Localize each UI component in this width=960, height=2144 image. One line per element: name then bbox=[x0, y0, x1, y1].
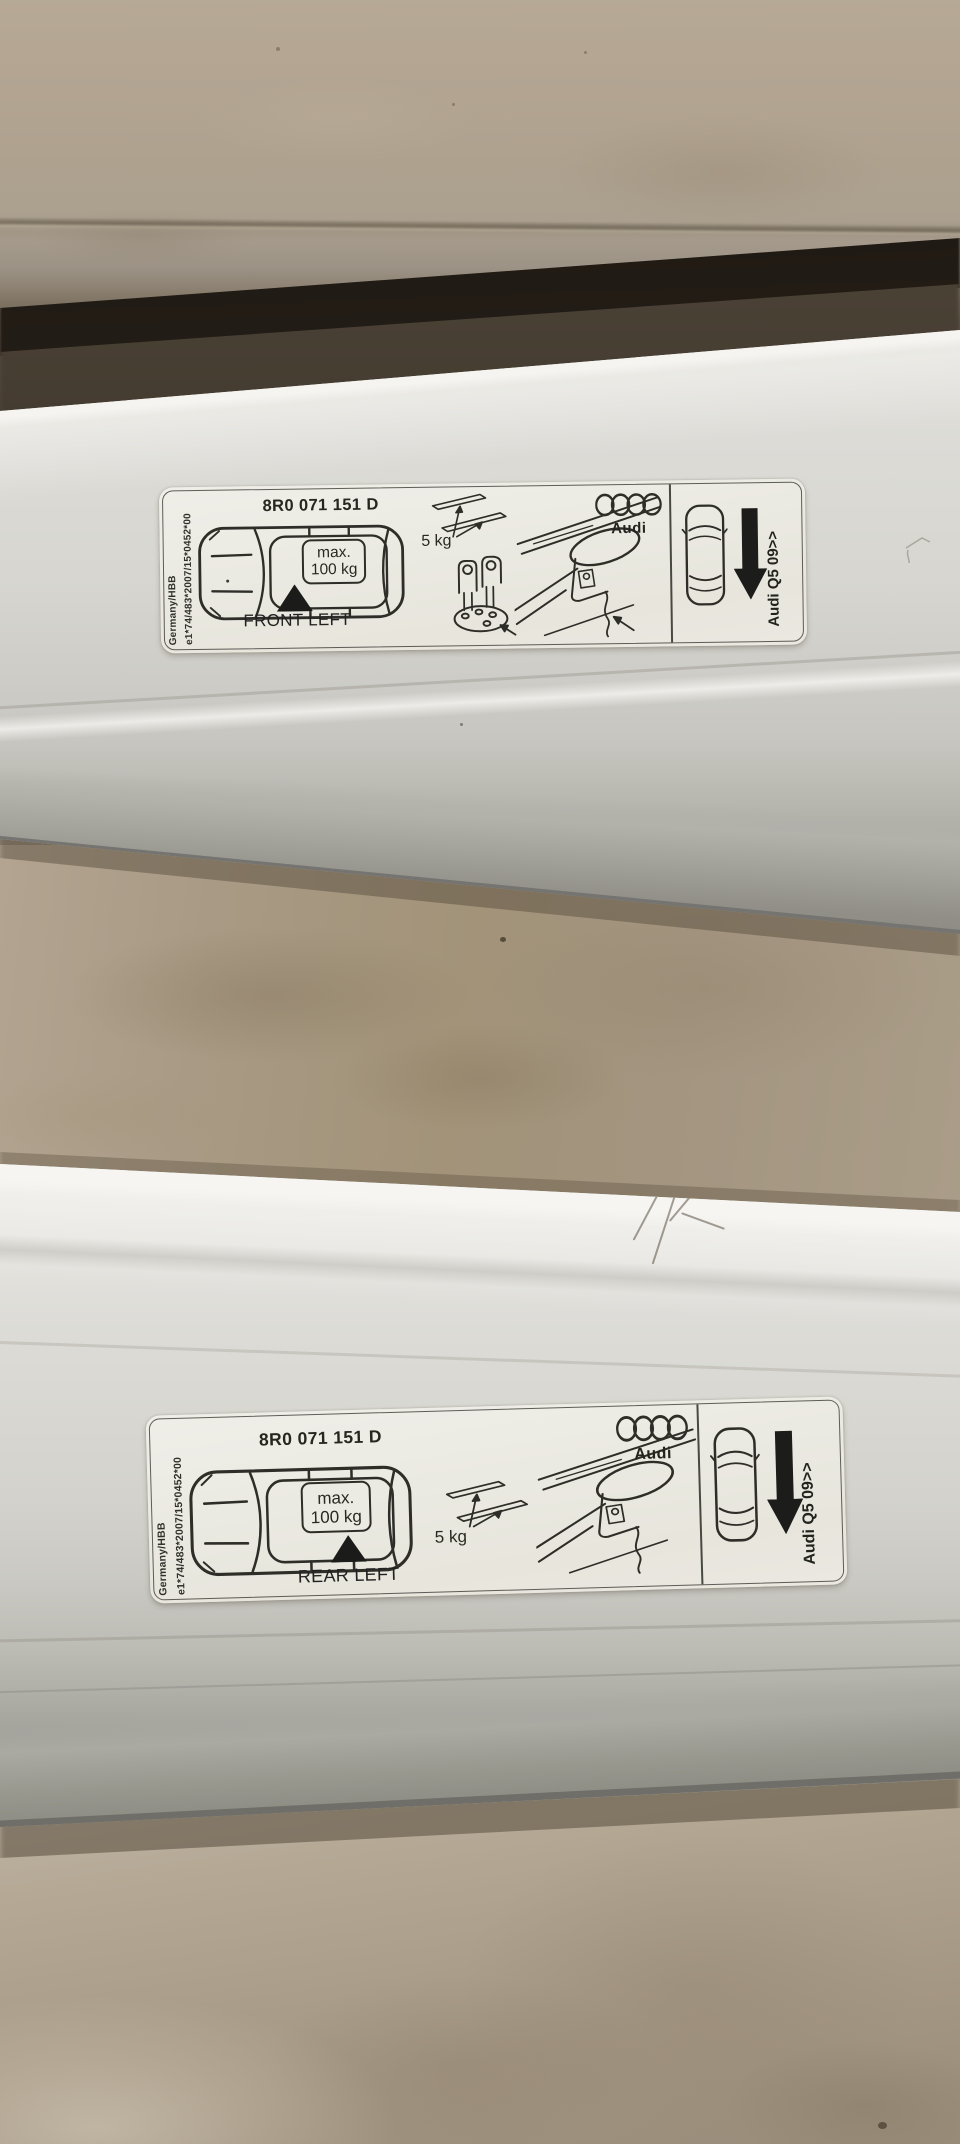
crossbar-diagram bbox=[427, 489, 512, 538]
mounting-bracket-diagram bbox=[447, 553, 517, 637]
roof-bar-label-rear-left: Germany/HBB e1*74/483*2007/15*0452*00 8R… bbox=[146, 1396, 848, 1603]
direction-arrow-icon bbox=[733, 508, 768, 600]
vehicle-top-view-icon bbox=[709, 1424, 763, 1546]
photo-two-roof-bars: Germany/HBB e1*74/483*2007/15*0452*00 8R… bbox=[0, 0, 960, 2144]
audi-wordmark: Audi bbox=[617, 1445, 689, 1465]
wall-speck bbox=[584, 51, 587, 54]
label-speck bbox=[226, 580, 229, 583]
part-number: 8R0 071 151 D bbox=[243, 495, 398, 516]
arrow-shaft bbox=[775, 1431, 794, 1502]
audi-rings-icon bbox=[616, 1412, 689, 1445]
vehicle-top-view-small-diagram bbox=[709, 1424, 763, 1546]
homologation-country-text: Germany/HBB bbox=[167, 575, 179, 645]
wall-speck bbox=[276, 47, 280, 51]
max-load-badge: max. 100 kg bbox=[300, 1481, 371, 1534]
car-top-view-diagram: max. 100 kg bbox=[187, 1462, 415, 1579]
max-load-line1: max. bbox=[317, 544, 351, 562]
audi-rings-svg bbox=[616, 1412, 689, 1445]
fitment-position-text: FRONT LEFT bbox=[243, 609, 350, 630]
max-load-badge: max. 100 kg bbox=[301, 538, 366, 584]
floor-speck bbox=[878, 2122, 887, 2129]
crossbar-icon bbox=[440, 1476, 533, 1529]
vehicle-top-view-small-diagram bbox=[681, 502, 729, 609]
homologation-country-text: Germany/HBB bbox=[155, 1522, 169, 1596]
crossbar-weight-text: 5 kg bbox=[435, 1527, 468, 1548]
max-load-line2: 100 kg bbox=[310, 1507, 362, 1527]
scuff-mark bbox=[900, 532, 936, 566]
audi-rings-svg bbox=[595, 490, 662, 518]
audi-wordmark: Audi bbox=[595, 519, 662, 537]
fitment-position-text: REAR LEFT bbox=[293, 1564, 405, 1588]
max-load-line1: max. bbox=[317, 1488, 354, 1508]
roof-bar-label-front-left: Germany/HBB e1*74/483*2007/15*0452*00 8R… bbox=[159, 478, 807, 653]
crossbar-icon bbox=[427, 489, 512, 538]
max-load-line2: 100 kg bbox=[311, 561, 358, 579]
vehicle-top-view-icon bbox=[681, 502, 729, 609]
arrow-head bbox=[767, 1499, 804, 1535]
crossbar-diagram bbox=[440, 1476, 533, 1529]
homologation-number-text: e1*74/483*2007/15*0452*00 bbox=[172, 1457, 188, 1595]
floor-speck bbox=[500, 937, 506, 942]
arrow-head bbox=[734, 568, 768, 599]
mounting-bracket-icon bbox=[447, 553, 517, 637]
bar-speck bbox=[460, 723, 463, 726]
vehicle-model-text: Audi Q5 09>> bbox=[764, 494, 783, 627]
part-number: 8R0 071 151 D bbox=[237, 1425, 405, 1451]
label-section-divider bbox=[669, 484, 673, 642]
arrow-shaft bbox=[742, 508, 758, 570]
wall-speck bbox=[452, 103, 455, 106]
vehicle-model-text: Audi Q5 09>> bbox=[798, 1414, 820, 1565]
audi-rings-icon bbox=[595, 490, 662, 518]
homologation-number-text: e1*74/483*2007/15*0452*00 bbox=[182, 513, 195, 645]
crossbar-weight-text: 5 kg bbox=[421, 532, 451, 550]
